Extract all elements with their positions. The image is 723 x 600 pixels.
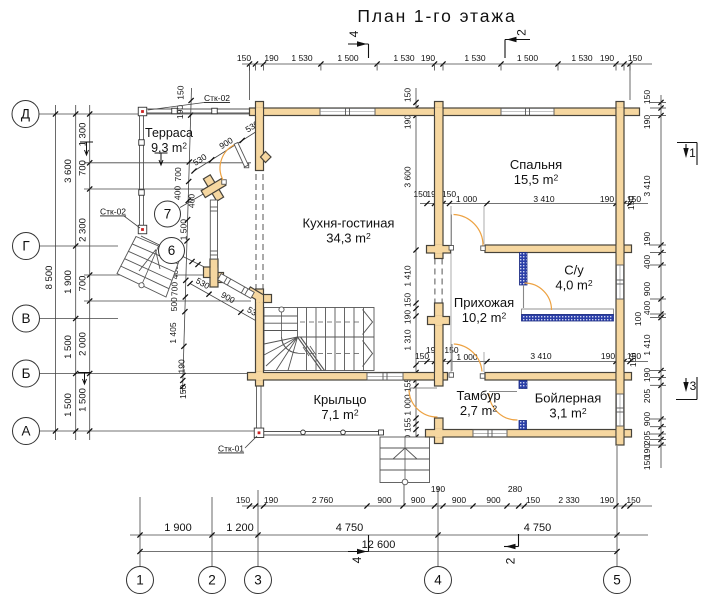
svg-text:150: 150	[237, 53, 251, 63]
svg-text:9,3 m2: 9,3 m2	[151, 141, 187, 155]
svg-text:1 200: 1 200	[226, 522, 254, 534]
svg-text:2 000: 2 000	[78, 332, 89, 356]
svg-text:190: 190	[421, 53, 435, 63]
svg-text:155: 155	[403, 418, 413, 432]
svg-text:3: 3	[690, 379, 697, 393]
svg-text:Стк-02: Стк-02	[100, 207, 126, 217]
svg-text:190: 190	[642, 368, 652, 382]
svg-text:3 410: 3 410	[533, 194, 555, 204]
svg-text:1 310: 1 310	[403, 329, 413, 351]
svg-text:3 410: 3 410	[530, 351, 552, 361]
svg-text:1 500: 1 500	[179, 219, 189, 241]
svg-text:150: 150	[642, 90, 652, 104]
svg-text:Б: Б	[22, 366, 31, 381]
svg-text:190: 190	[403, 115, 413, 129]
svg-text:2,7 m2: 2,7 m2	[460, 403, 498, 418]
svg-text:1: 1	[689, 146, 696, 160]
svg-text:900: 900	[642, 412, 652, 426]
svg-text:1: 1	[136, 573, 144, 588]
svg-text:150: 150	[175, 85, 185, 99]
svg-text:15,5 m2: 15,5 m2	[514, 172, 559, 187]
svg-text:Кухня-гостиная: Кухня-гостиная	[303, 216, 395, 231]
svg-text:2: 2	[515, 29, 529, 36]
svg-text:Терраса: Терраса	[145, 126, 193, 140]
svg-text:150: 150	[628, 53, 642, 63]
svg-text:4: 4	[350, 556, 364, 563]
svg-text:Спальня: Спальня	[510, 157, 562, 172]
svg-text:190: 190	[403, 310, 413, 324]
svg-text:Бойлерная: Бойлерная	[535, 391, 602, 406]
svg-text:190: 190	[642, 232, 652, 246]
svg-text:6: 6	[168, 243, 176, 258]
svg-text:1 900: 1 900	[63, 270, 74, 294]
svg-text:2: 2	[504, 557, 518, 564]
svg-text:1 530: 1 530	[571, 53, 593, 63]
svg-text:7: 7	[164, 207, 172, 222]
svg-text:190: 190	[601, 351, 615, 361]
svg-text:Г: Г	[22, 239, 30, 254]
svg-text:3: 3	[254, 573, 262, 588]
svg-text:Д: Д	[21, 107, 30, 122]
svg-text:3 410: 3 410	[642, 175, 652, 197]
svg-text:150: 150	[642, 456, 652, 470]
svg-text:4 750: 4 750	[336, 522, 364, 534]
svg-text:190: 190	[264, 495, 278, 505]
svg-text:400: 400	[642, 255, 652, 269]
svg-text:2 330: 2 330	[558, 495, 580, 505]
svg-text:150: 150	[236, 495, 250, 505]
svg-text:900: 900	[642, 282, 652, 296]
svg-text:1 500: 1 500	[63, 335, 74, 359]
svg-text:Стк-02: Стк-02	[204, 93, 230, 103]
svg-text:205: 205	[642, 431, 652, 445]
svg-text:190: 190	[600, 194, 614, 204]
svg-text:4: 4	[347, 30, 361, 37]
svg-text:7,1 m2: 7,1 m2	[321, 407, 359, 422]
svg-text:1 000: 1 000	[456, 194, 478, 204]
svg-text:400: 400	[642, 301, 652, 315]
svg-text:150: 150	[526, 495, 540, 505]
svg-text:190: 190	[177, 359, 187, 373]
svg-text:Тамбур: Тамбур	[456, 388, 500, 403]
svg-text:1 500: 1 500	[517, 53, 539, 63]
svg-text:700: 700	[78, 160, 89, 176]
svg-text:4 750: 4 750	[524, 522, 552, 534]
svg-text:100: 100	[633, 312, 643, 326]
svg-text:1 000: 1 000	[403, 394, 413, 416]
svg-text:2: 2	[208, 573, 216, 588]
svg-text:3 600: 3 600	[63, 159, 74, 183]
svg-text:700: 700	[173, 167, 183, 181]
svg-text:900: 900	[452, 495, 466, 505]
svg-text:2 760: 2 760	[312, 495, 334, 505]
svg-text:3,1 m2: 3,1 m2	[549, 406, 587, 421]
svg-text:150: 150	[626, 495, 640, 505]
svg-text:С/у: С/у	[564, 263, 584, 278]
svg-text:1 530: 1 530	[291, 53, 313, 63]
svg-text:150: 150	[178, 385, 188, 399]
svg-text:1 410: 1 410	[403, 265, 413, 287]
svg-text:190: 190	[431, 484, 445, 494]
svg-text:4: 4	[434, 573, 442, 588]
svg-text:150: 150	[403, 88, 413, 102]
svg-text:700: 700	[78, 276, 89, 292]
svg-text:4,0 m2: 4,0 m2	[555, 278, 593, 293]
svg-text:10,2 m2: 10,2 m2	[462, 310, 507, 325]
svg-text:190: 190	[600, 53, 614, 63]
svg-text:1 530: 1 530	[464, 53, 486, 63]
svg-text:Стк-01: Стк-01	[218, 444, 244, 454]
svg-text:190: 190	[264, 53, 278, 63]
svg-text:1 500: 1 500	[63, 393, 74, 417]
svg-text:1 410: 1 410	[642, 334, 652, 356]
svg-text:1 500: 1 500	[337, 53, 359, 63]
svg-text:150: 150	[627, 194, 641, 204]
svg-text:Крыльцо: Крыльцо	[313, 392, 366, 407]
svg-text:190: 190	[600, 495, 614, 505]
svg-text:500: 500	[169, 297, 179, 311]
svg-text:8 500: 8 500	[44, 266, 55, 290]
svg-text:150: 150	[403, 293, 413, 307]
svg-text:900: 900	[411, 495, 425, 505]
svg-text:1 500: 1 500	[78, 388, 89, 412]
svg-text:План 1-го этажа: План 1-го этажа	[357, 6, 516, 26]
svg-text:150: 150	[442, 189, 456, 199]
svg-text:150: 150	[627, 351, 641, 361]
svg-text:400: 400	[172, 186, 182, 200]
svg-text:190: 190	[642, 115, 652, 129]
svg-text:900: 900	[377, 495, 391, 505]
svg-text:280: 280	[508, 484, 522, 494]
svg-text:12 600: 12 600	[362, 539, 396, 551]
svg-text:А: А	[21, 424, 30, 439]
svg-text:Прихожая: Прихожая	[454, 295, 514, 310]
svg-text:205: 205	[642, 389, 652, 403]
svg-text:34,3 m2: 34,3 m2	[326, 231, 371, 246]
svg-text:3 600: 3 600	[403, 166, 413, 188]
svg-text:В: В	[21, 311, 30, 326]
svg-text:1 900: 1 900	[164, 522, 192, 534]
svg-text:2 300: 2 300	[78, 218, 89, 242]
svg-text:1 530: 1 530	[393, 53, 415, 63]
svg-text:1 405: 1 405	[168, 322, 178, 344]
svg-text:5: 5	[613, 573, 621, 588]
svg-text:900: 900	[486, 495, 500, 505]
